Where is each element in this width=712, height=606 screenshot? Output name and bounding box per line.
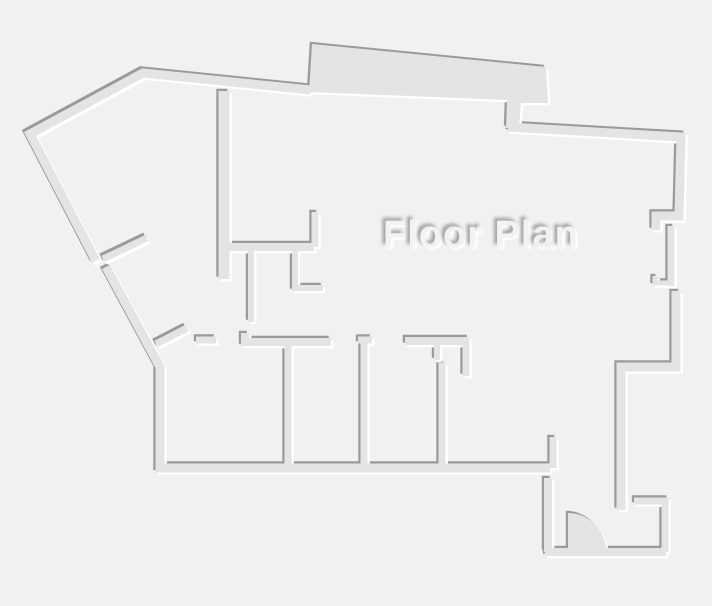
outer-wall-right-lower <box>621 291 676 510</box>
outer-wall-top-left <box>28 71 309 259</box>
outer-wall-left-lower <box>106 267 550 468</box>
plan-title: Floor Plan <box>383 214 579 257</box>
entry-door-swing <box>568 513 606 551</box>
outer-wall-left-lower <box>108 269 552 470</box>
top-bay-slab <box>309 44 548 128</box>
outer-wall-top-left <box>30 73 311 261</box>
layer-highlight <box>32 46 683 554</box>
layer-wall <box>30 44 681 552</box>
floor-plan-drawing <box>0 0 712 606</box>
floor-plan-canvas: Floor Plan <box>0 0 712 606</box>
outer-wall-left-lower <box>104 265 548 466</box>
